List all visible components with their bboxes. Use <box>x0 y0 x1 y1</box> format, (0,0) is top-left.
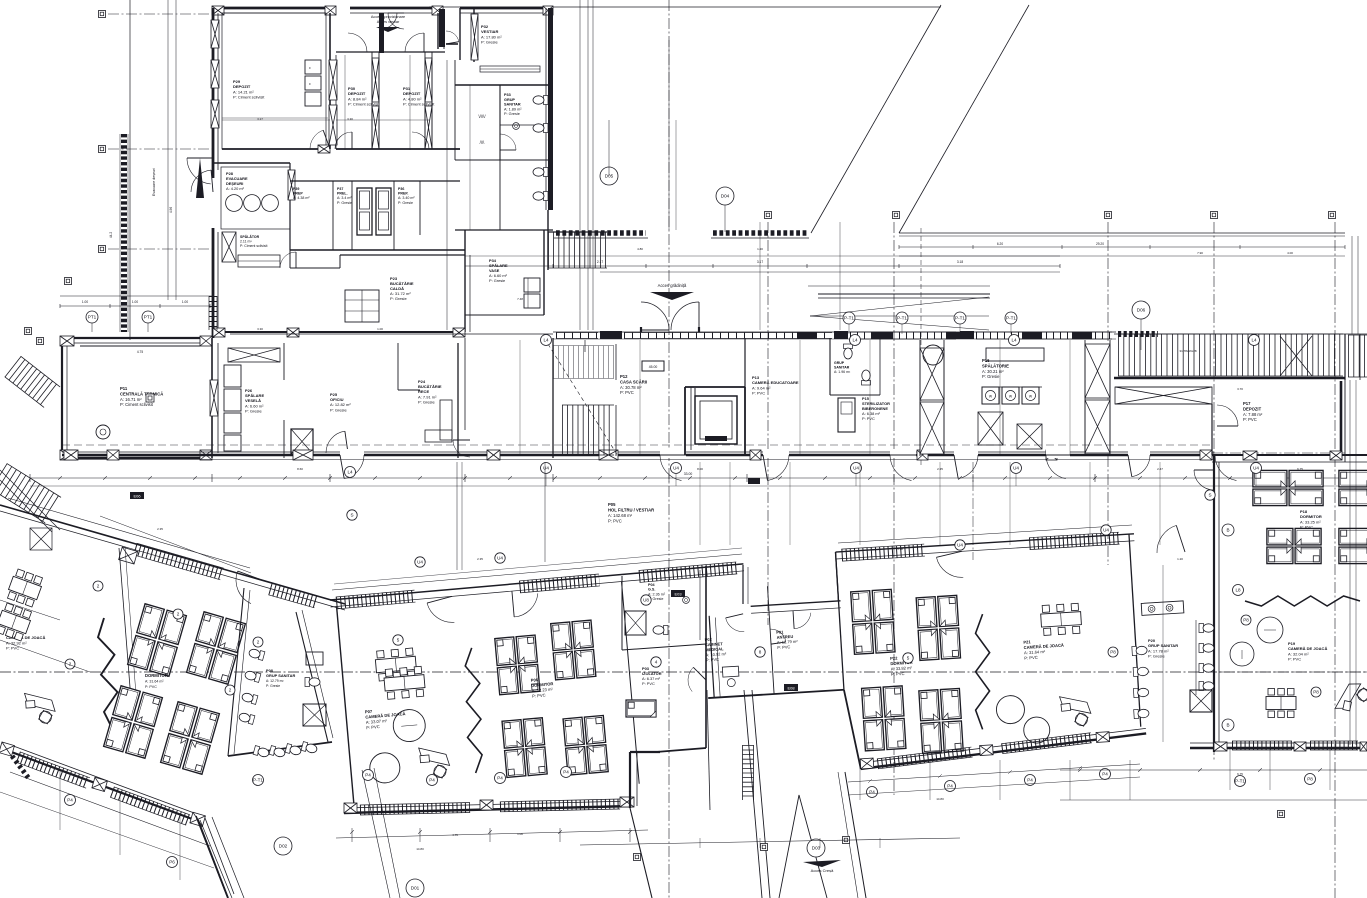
svg-text:P4: P4 <box>365 773 371 778</box>
svg-text:P8: P8 <box>1110 650 1116 655</box>
svg-text:CENTRALĂ TERMICĂ: CENTRALĂ TERMICĂ <box>120 391 163 396</box>
svg-text:Acces grădiniță: Acces grădiniță <box>658 283 687 288</box>
svg-text:P: PVC: P: PVC <box>1243 417 1257 422</box>
svg-text:2.35: 2.35 <box>937 467 943 471</box>
svg-text:P4: P4 <box>67 798 73 803</box>
svg-text:A: 4.20 m²: A: 4.20 m² <box>226 186 245 191</box>
svg-text:P: Gresie: P: Gresie <box>245 408 262 413</box>
svg-text:8.60: 8.60 <box>297 467 303 471</box>
svg-text:A: 7.88 m²: A: 7.88 m² <box>1243 412 1263 417</box>
svg-text:P: PVC: P: PVC <box>642 681 655 686</box>
svg-text:7.90: 7.90 <box>1197 251 1203 255</box>
svg-text:SANITAR: SANITAR <box>834 365 850 369</box>
svg-text:2.11 m²: 2.11 m² <box>240 239 252 243</box>
svg-text:SPĂLĂTORIE: SPĂLĂTORIE <box>982 363 1009 368</box>
svg-text:PREP.: PREP. <box>398 192 408 196</box>
svg-text:P: Gresie: P: Gresie <box>982 374 1000 379</box>
svg-text:P4: P4 <box>563 770 569 775</box>
svg-text:E03: E03 <box>674 592 682 597</box>
svg-text:33.00: 33.00 <box>684 472 693 476</box>
svg-text:P33: P33 <box>504 93 511 97</box>
svg-text:PREL.: PREL. <box>337 192 348 196</box>
svg-text:1.20: 1.20 <box>757 247 763 251</box>
svg-text:P-T1: P-T1 <box>955 316 965 321</box>
svg-text:4.00: 4.00 <box>1287 251 1293 255</box>
svg-text:3.18: 3.18 <box>957 260 963 264</box>
svg-text:DEPOZIT: DEPOZIT <box>1243 406 1262 411</box>
svg-text:A: 4.38 m²: A: 4.38 m² <box>293 196 310 200</box>
svg-text:4.96: 4.96 <box>169 207 173 213</box>
svg-text:A: 2.36 m²: A: 2.36 m² <box>648 592 666 596</box>
svg-text:5: 5 <box>397 638 400 643</box>
svg-text:L8: L8 <box>1235 588 1241 593</box>
svg-text:29.20: 29.20 <box>1096 242 1104 246</box>
svg-text:P11: P11 <box>120 386 128 391</box>
svg-text:P: PVC: P: PVC <box>862 416 875 421</box>
svg-text:D03: D03 <box>812 846 821 851</box>
svg-text:2: 2 <box>69 662 72 667</box>
svg-text:P8: P8 <box>1243 618 1249 623</box>
svg-text:6.75: 6.75 <box>1297 467 1303 471</box>
svg-text:2: 2 <box>177 612 180 617</box>
svg-text:A: 16.71 m²: A: 16.71 m² <box>120 397 142 402</box>
svg-text:S: S <box>1208 493 1211 498</box>
svg-text:P: PVC: P: PVC <box>1288 657 1301 662</box>
svg-text:8.00: 8.00 <box>697 467 703 471</box>
svg-text:4.80: 4.80 <box>637 247 643 251</box>
svg-text:2.47: 2.47 <box>1157 467 1163 471</box>
svg-text:P: PVC: P: PVC <box>706 657 720 663</box>
svg-text:31.78x16x28: 31.78x16x28 <box>1179 349 1197 353</box>
svg-text:P4: P4 <box>1102 772 1108 777</box>
svg-text:P17: P17 <box>1243 401 1251 406</box>
svg-text:P4: P4 <box>429 778 435 783</box>
svg-text:4.75: 4.75 <box>137 350 143 354</box>
svg-text:L4: L4 <box>1251 338 1257 343</box>
svg-text:U4: U4 <box>853 466 859 471</box>
svg-text:P6: P6 <box>169 860 175 865</box>
svg-text:P36: P36 <box>398 187 404 191</box>
svg-text:F: F <box>309 66 311 70</box>
svg-text:6.75: 6.75 <box>1237 772 1243 776</box>
svg-text:2: 2 <box>97 584 100 589</box>
svg-text:3.30: 3.30 <box>347 117 353 121</box>
svg-text:\/\/\/: \/\/\/ <box>479 114 487 119</box>
svg-text:P: Gresie: P: Gresie <box>330 407 347 412</box>
svg-text:P04: P04 <box>648 583 656 587</box>
svg-text:P8: P8 <box>1307 777 1313 782</box>
svg-text:3.70: 3.70 <box>1237 387 1243 391</box>
svg-text:P: PVC: P: PVC <box>608 519 622 524</box>
svg-text:2: 2 <box>229 688 232 693</box>
svg-text:P: Gresie: P: Gresie <box>481 40 498 45</box>
svg-text:U4: U4 <box>673 466 679 471</box>
svg-text:P: PVC: P: PVC <box>620 390 634 395</box>
svg-text:P4: P4 <box>947 784 953 789</box>
svg-text:P4: P4 <box>497 776 503 781</box>
svg-text:7.48: 7.48 <box>517 297 523 301</box>
svg-text:U8: U8 <box>643 598 649 603</box>
svg-text:P: Gresie: P: Gresie <box>390 296 407 301</box>
svg-text:P: Gresie: P: Gresie <box>337 201 352 205</box>
svg-text:1.20: 1.20 <box>1177 557 1183 561</box>
svg-text:L4: L4 <box>347 470 353 475</box>
svg-text:D02: D02 <box>279 844 288 849</box>
svg-text:2.35: 2.35 <box>477 557 483 561</box>
svg-text:4.75: 4.75 <box>452 833 458 837</box>
svg-text:P: Gresie: P: Gresie <box>418 399 435 404</box>
svg-text:CASA SCĂRII: CASA SCĂRII <box>620 379 647 384</box>
svg-text:Evacuare deșeuri: Evacuare deșeuri <box>152 168 156 196</box>
svg-text:1.00: 1.00 <box>132 300 138 304</box>
svg-text:P: Gresie: P: Gresie <box>489 278 505 283</box>
svg-text:P: PVC: P: PVC <box>1024 655 1038 661</box>
svg-text:E08: E08 <box>787 686 795 691</box>
svg-text:44.2: 44.2 <box>109 232 113 238</box>
svg-text:U4: U4 <box>417 560 423 565</box>
svg-text:2: 2 <box>257 640 260 645</box>
svg-text:HOL FILTRU / VESTIAR: HOL FILTRU / VESTIAR <box>608 508 654 513</box>
svg-text:A: 1.89 m²: A: 1.89 m² <box>504 107 522 111</box>
svg-text:14.80: 14.80 <box>936 797 944 801</box>
svg-text:B: B <box>1226 528 1229 533</box>
svg-text:SANITAR: SANITAR <box>504 103 521 107</box>
svg-text:P-T1: P-T1 <box>1006 316 1016 321</box>
svg-text:8: 8 <box>759 650 762 655</box>
svg-text:A: 3.4 m²: A: 3.4 m² <box>337 196 352 200</box>
svg-text:GRUP: GRUP <box>504 98 515 102</box>
svg-text:1.00: 1.00 <box>377 327 383 331</box>
svg-text:U4: U4 <box>1253 466 1259 471</box>
svg-text:B: B <box>1226 723 1229 728</box>
svg-text:P: Ciment sclivisit: P: Ciment sclivisit <box>120 402 154 407</box>
svg-text:D04: D04 <box>721 194 730 199</box>
svg-text:P: PVC: P: PVC <box>777 644 791 650</box>
svg-text:PT1: PT1 <box>88 315 97 320</box>
svg-text:5: 5 <box>907 656 910 661</box>
svg-text:P-T1: P-T1 <box>897 316 907 321</box>
svg-text:DORMITOR: DORMITOR <box>145 673 168 678</box>
svg-text:PREP: PREP <box>293 192 303 196</box>
svg-text:U4: U4 <box>1013 466 1019 471</box>
svg-text:6.20: 6.20 <box>997 242 1003 246</box>
svg-text:A: 31.64 m²: A: 31.64 m² <box>145 679 164 683</box>
svg-text:A: 30.78 m²: A: 30.78 m² <box>620 385 642 390</box>
svg-text:3.18: 3.18 <box>897 547 903 551</box>
svg-text:P: PVC: P: PVC <box>752 391 765 396</box>
svg-text:1.00: 1.00 <box>182 300 188 304</box>
svg-text:3.30: 3.30 <box>257 327 263 331</box>
svg-text:1.00: 1.00 <box>517 832 523 836</box>
svg-text:U4: U4 <box>543 466 549 471</box>
svg-text:P: Gresie: P: Gresie <box>266 684 280 688</box>
svg-text:3.27: 3.27 <box>257 117 263 121</box>
svg-text:P: Ciment sclivisit: P: Ciment sclivisit <box>233 95 265 100</box>
svg-text:P: Ciment sclivisit: P: Ciment sclivisit <box>240 244 267 248</box>
svg-text:P-T1: P-T1 <box>253 778 263 783</box>
svg-text:U4: U4 <box>957 543 963 548</box>
svg-text:P: Gresie: P: Gresie <box>504 112 520 116</box>
svg-text:P: PVC: P: PVC <box>145 685 157 689</box>
svg-text:A: 3.40 m²: A: 3.40 m² <box>398 196 415 200</box>
svg-text:P12: P12 <box>620 374 628 379</box>
svg-text:P: Gresie: P: Gresie <box>398 201 413 205</box>
svg-text:P39: P39 <box>293 187 299 191</box>
svg-text:P05: P05 <box>608 502 616 507</box>
svg-text:SPĂLĂTOR: SPĂLĂTOR <box>240 234 260 239</box>
svg-text:GRUP SANITAR: GRUP SANITAR <box>266 673 295 678</box>
svg-text:4: 4 <box>655 660 658 665</box>
svg-text:U4: U4 <box>1103 528 1109 533</box>
svg-text:2.35: 2.35 <box>157 527 163 531</box>
svg-text:G.S.: G.S. <box>648 588 655 592</box>
svg-text:D06: D06 <box>1137 308 1146 313</box>
svg-text:P37: P37 <box>337 187 343 191</box>
svg-text:GRUP: GRUP <box>834 361 845 365</box>
svg-text:A: 1.96 m²: A: 1.96 m² <box>834 370 851 374</box>
svg-text:S: S <box>350 513 353 518</box>
svg-text:P4: P4 <box>1027 778 1033 783</box>
svg-text:A: 142.68 m²: A: 142.68 m² <box>608 513 633 518</box>
svg-text:A: 12.79 m²: A: 12.79 m² <box>266 679 284 683</box>
svg-text:L4: L4 <box>852 338 858 343</box>
svg-text:A: 30.21 m²: A: 30.21 m² <box>982 369 1004 374</box>
svg-text:P-T1: P-T1 <box>844 316 854 321</box>
svg-text:P8: P8 <box>1313 690 1319 695</box>
svg-text:L4: L4 <box>543 338 549 343</box>
svg-text:U4: U4 <box>497 556 503 561</box>
svg-text:45.00: 45.00 <box>649 365 658 369</box>
svg-text:F: F <box>309 82 311 86</box>
svg-text:L4: L4 <box>1011 338 1017 343</box>
svg-text:1.00: 1.00 <box>82 300 88 304</box>
svg-text:D01: D01 <box>411 886 420 891</box>
svg-text:P: PVC: P: PVC <box>891 671 905 677</box>
svg-text:E06: E06 <box>133 494 141 499</box>
svg-text:PT1: PT1 <box>144 315 153 320</box>
svg-text:P-T1: P-T1 <box>1235 779 1245 784</box>
svg-text:Acces Creșă: Acces Creșă <box>811 868 834 873</box>
svg-text:14.80: 14.80 <box>416 847 424 851</box>
